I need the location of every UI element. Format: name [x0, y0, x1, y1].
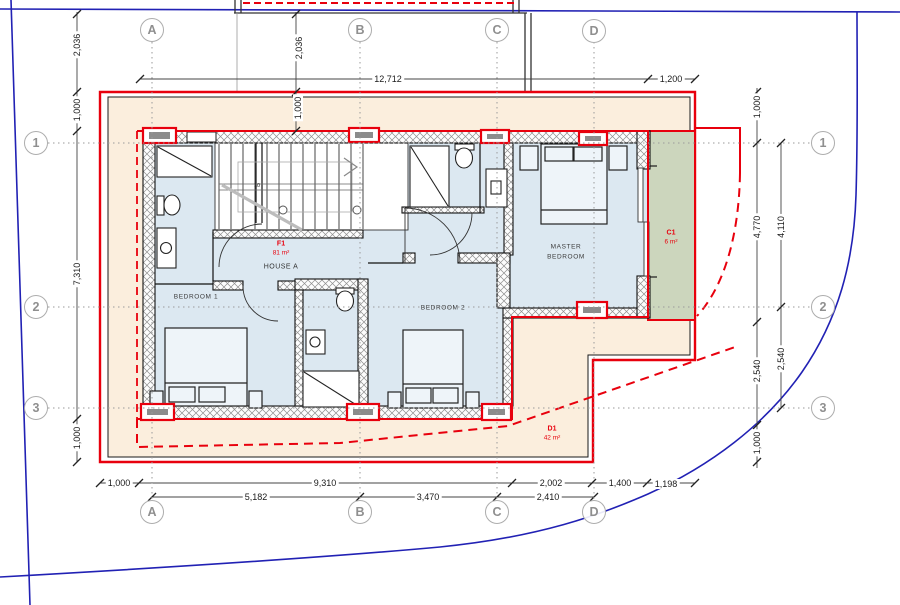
grid-bubble-d-bottom: D [582, 500, 606, 524]
dim-bottom-5182: 5,182 [243, 492, 270, 502]
label-f1-name: HOUSE A [264, 264, 299, 271]
label-c1-area: 6 m² [665, 239, 678, 246]
dim-left-1000a: 1,000 [72, 97, 82, 124]
dim-left-2036: 2,036 [72, 32, 82, 59]
dim-bottom-2410: 2,410 [535, 492, 562, 502]
floor-plan-drawing [0, 0, 900, 605]
label-f1-area: 81 m² [273, 250, 290, 257]
grid-bubble-c-bottom: C [485, 500, 509, 524]
label-master-bedroom: MASTER BEDROOM [540, 242, 592, 262]
label-c1-code: C1 [667, 230, 676, 237]
dim-colb-1000: 1,000 [293, 95, 303, 122]
dim-bottom-9310: 9,310 [312, 478, 339, 488]
grid-bubble-b-bottom: B [348, 500, 372, 524]
dim-top-1200: 1,200 [658, 74, 685, 84]
grid-bubble-3-left: 3 [24, 396, 48, 420]
dim-right-4770: 4,770 [752, 214, 762, 241]
dim-bottom-2002: 2,002 [538, 478, 565, 488]
grid-bubble-d-top: D [582, 19, 606, 43]
dim-bottom-1400: 1,400 [607, 478, 634, 488]
dim-right-2540a: 2,540 [752, 358, 762, 385]
grid-bubble-1-right: 1 [811, 131, 835, 155]
dim-bottom-3470: 3,470 [415, 492, 442, 502]
grid-bubble-2-right: 2 [811, 295, 835, 319]
grid-bubble-b-top: B [348, 18, 372, 42]
label-bedroom1: BEDROOM 1 [174, 294, 218, 301]
label-f1-code: F1 [277, 241, 285, 248]
grid-bubble-a-bottom: A [140, 500, 164, 524]
dim-left-1000b: 1,000 [72, 425, 82, 452]
grid-bubble-c-top: C [485, 18, 509, 42]
floor-plan-canvas: A B C D A B C D 1 2 3 1 2 3 12,712 1,200… [0, 0, 900, 605]
grid-bubble-1-left: 1 [24, 131, 48, 155]
dim-bottom-1198: 1,198 [653, 479, 680, 489]
label-bedroom2: BEDROOM 2 [421, 305, 465, 312]
grid-bubble-2-left: 2 [24, 295, 48, 319]
balcony-c1 [648, 131, 695, 320]
grid-bubble-a-top: A [140, 18, 164, 42]
dim-right-1000b: 1,000 [752, 430, 762, 457]
dim-right-2540b: 2,540 [776, 346, 786, 373]
dim-left-7310: 7,310 [72, 261, 82, 288]
dim-bottom-1000: 1,000 [106, 478, 133, 488]
label-d1-area: 42 m² [544, 435, 561, 442]
dim-top-12712: 12,712 [372, 74, 404, 84]
dim-right-4110: 4,110 [776, 214, 786, 240]
dim-right-1000a: 1,000 [752, 94, 762, 121]
label-stair-run: 10 [254, 183, 260, 189]
dim-colb-2036: 2,036 [294, 35, 304, 62]
label-d1-code: D1 [548, 426, 557, 433]
grid-bubble-3-right: 3 [811, 396, 835, 420]
